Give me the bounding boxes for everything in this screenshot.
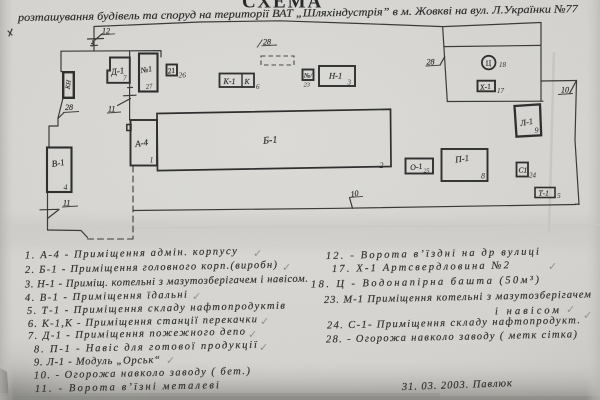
svg-text:В-1: В-1 [51,157,65,169]
svg-text:✓: ✓ [253,248,262,260]
svg-text:25: 25 [424,169,430,175]
svg-text:✓: ✓ [260,316,269,328]
svg-text:8: 8 [481,172,485,181]
svg-text:А-4: А-4 [133,137,149,149]
svg-text:✓: ✓ [566,304,575,316]
svg-text:6: 6 [256,83,260,91]
svg-text:3: 3 [347,79,352,87]
svg-text:5: 5 [557,191,561,200]
svg-text:✓: ✓ [548,261,557,273]
svg-text:Х-1: Х-1 [479,82,492,92]
svg-text:✓: ✓ [583,310,592,322]
svg-text:26: 26 [179,71,187,80]
svg-text:4: 4 [64,183,68,192]
svg-text:2: 2 [380,161,384,170]
svg-text:Н-1: Н-1 [328,71,342,81]
svg-text:Т-1: Т-1 [539,189,549,198]
svg-text:17: 17 [497,87,505,95]
svg-text:С1: С1 [519,166,528,175]
svg-text:28: 28 [65,103,73,112]
svg-text:23: 23 [304,82,311,89]
svg-text:21: 21 [167,66,176,76]
svg-text:7: 7 [123,75,127,83]
svg-text:К-1: К-1 [223,77,236,86]
svg-text:КН: КН [64,79,72,90]
svg-text:О-1: О-1 [410,162,424,173]
svg-text:П-1: П-1 [453,153,469,165]
svg-text:9: 9 [535,126,539,135]
svg-text:К: К [244,77,251,86]
svg-text:24: 24 [529,172,537,180]
svg-text:✓: ✓ [166,355,175,367]
svg-text:✓: ✓ [259,342,268,354]
svg-text:✓: ✓ [282,262,291,274]
svg-text:1: 1 [150,156,154,165]
svg-text:18: 18 [499,61,507,69]
svg-text:✓: ✓ [192,291,201,303]
svg-text:№/: №/ [303,73,313,80]
svg-text:Б-1: Б-1 [262,135,278,147]
svg-text:10: 10 [561,86,569,95]
